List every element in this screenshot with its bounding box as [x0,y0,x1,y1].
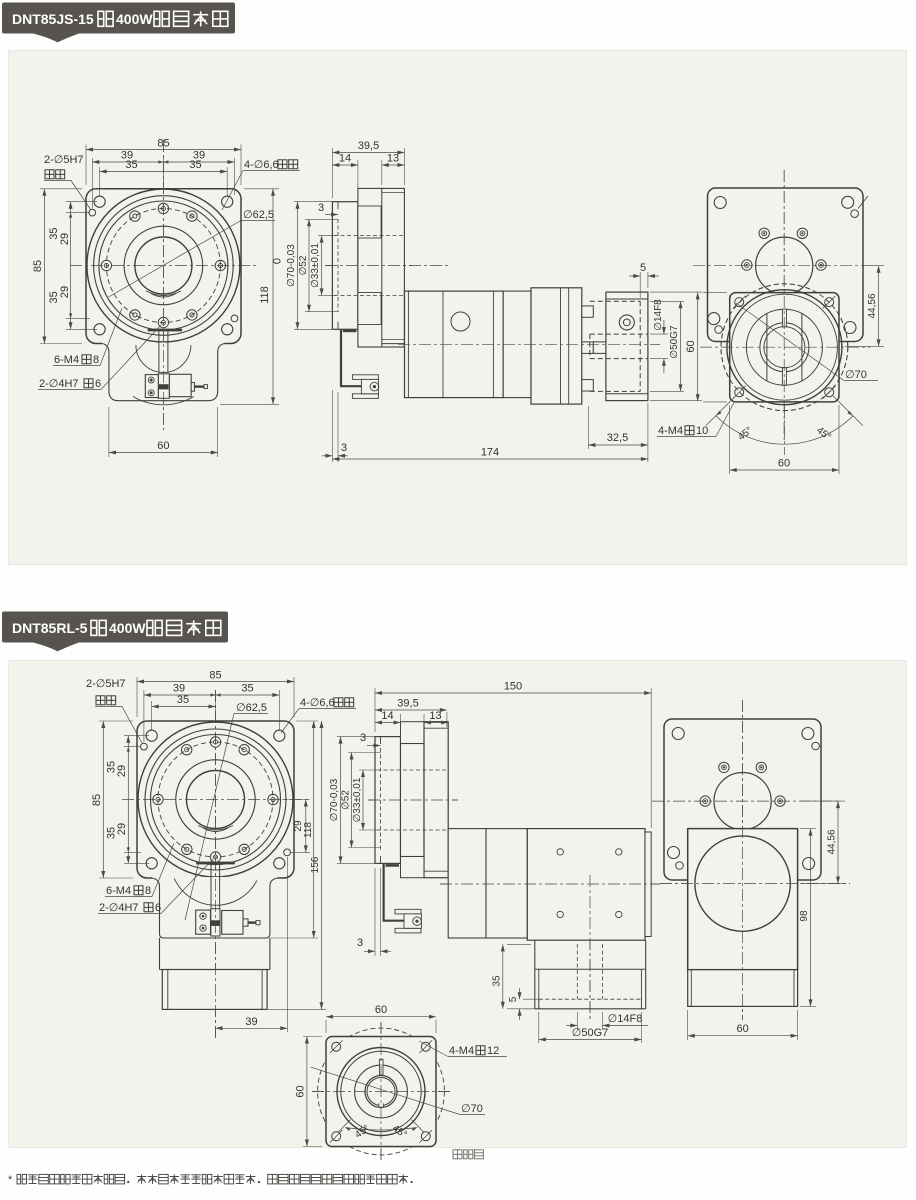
svg-text:∅52: ∅52 [340,790,351,810]
svg-text:60: 60 [736,1023,748,1035]
svg-text:400W: 400W [109,620,146,636]
svg-text:∅50G7: ∅50G7 [669,325,680,359]
svg-text:45°: 45° [814,425,833,443]
svg-text:∅14F8: ∅14F8 [608,1013,643,1025]
svg-text:44,56: 44,56 [867,293,878,318]
svg-text:6: 6 [155,902,161,914]
svg-text:39,5: 39,5 [397,698,418,710]
svg-text:118: 118 [303,822,314,838]
svg-text:2-∅5H7: 2-∅5H7 [86,678,126,690]
svg-text:14: 14 [339,153,351,165]
svg-text:60: 60 [375,1004,387,1016]
svg-text:2-∅4H7: 2-∅4H7 [39,378,79,390]
svg-text:12: 12 [487,1045,499,1057]
svg-text:8: 8 [93,354,99,366]
svg-text:∅62,5: ∅62,5 [236,702,267,714]
svg-text:3: 3 [360,732,366,744]
svg-text:39: 39 [245,1016,257,1028]
svg-text:60: 60 [157,440,169,452]
svg-text:4-M4: 4-M4 [449,1045,474,1057]
svg-text:3: 3 [341,442,347,454]
svg-text:118: 118 [259,286,271,304]
svg-text:∅52: ∅52 [298,255,309,275]
svg-text:4-∅6,6: 4-∅6,6 [300,697,335,709]
svg-text:13: 13 [387,153,399,165]
svg-text:85: 85 [209,670,221,682]
svg-text:2-∅4H7: 2-∅4H7 [99,902,139,914]
svg-text:14: 14 [381,710,393,722]
svg-text:35: 35 [106,827,118,839]
svg-text:6-M4: 6-M4 [54,354,79,366]
svg-text:10: 10 [696,425,708,437]
svg-text:DNT85JS-15: DNT85JS-15 [12,11,94,27]
svg-text:5: 5 [640,262,646,274]
svg-text:32,5: 32,5 [607,432,628,444]
svg-text:∅70-0,03: ∅70-0,03 [286,244,297,287]
svg-text:85: 85 [32,260,44,272]
svg-text:60: 60 [295,1085,307,1097]
svg-text:29: 29 [116,765,128,777]
svg-text:4-∅6,6: 4-∅6,6 [244,159,279,171]
svg-text:3: 3 [357,937,363,949]
svg-text:∅70-0,03: ∅70-0,03 [329,778,340,821]
svg-text:∅70: ∅70 [845,369,867,381]
svg-text:174: 174 [481,447,499,459]
svg-text:*: * [8,1174,13,1186]
svg-text:400W: 400W [116,11,153,27]
svg-text:29: 29 [293,820,304,832]
svg-text:35: 35 [189,159,201,171]
svg-text:150: 150 [504,681,522,693]
svg-text:35: 35 [125,159,137,171]
svg-text:∅62,5: ∅62,5 [243,209,274,221]
svg-text:35: 35 [177,694,189,706]
svg-text:29: 29 [116,823,128,835]
svg-text:∅14F8: ∅14F8 [653,299,664,331]
svg-text:156: 156 [310,856,321,873]
svg-text:6-M4: 6-M4 [106,885,131,897]
svg-text:0: 0 [272,258,284,264]
svg-text:35: 35 [491,975,502,987]
svg-text:∅33±0,01: ∅33±0,01 [352,777,363,822]
svg-text:3: 3 [318,202,324,214]
svg-text:29: 29 [59,286,71,298]
svg-text:∅50G7: ∅50G7 [572,1027,609,1039]
svg-text:8: 8 [145,885,151,897]
svg-text:45°: 45° [736,425,755,443]
svg-text:DNT85RL-5: DNT85RL-5 [12,620,88,636]
svg-text:29: 29 [59,233,71,245]
svg-text:39,5: 39,5 [358,140,379,152]
svg-text:∅70: ∅70 [461,1103,483,1115]
svg-text:35: 35 [48,291,60,303]
svg-text:39: 39 [173,683,185,695]
svg-text:35: 35 [241,683,253,695]
svg-text:5: 5 [508,996,519,1002]
svg-text:60: 60 [778,458,790,470]
svg-text:44,56: 44,56 [827,829,838,854]
svg-text:6: 6 [95,378,101,390]
svg-text:13: 13 [429,710,441,722]
svg-text:4-M4: 4-M4 [658,425,683,437]
svg-text:60: 60 [685,340,697,352]
svg-text:85: 85 [91,794,103,806]
svg-text:∅33±0,01: ∅33±0,01 [310,243,321,288]
svg-text:2-∅5H7: 2-∅5H7 [44,154,84,166]
svg-text:98: 98 [799,910,810,922]
